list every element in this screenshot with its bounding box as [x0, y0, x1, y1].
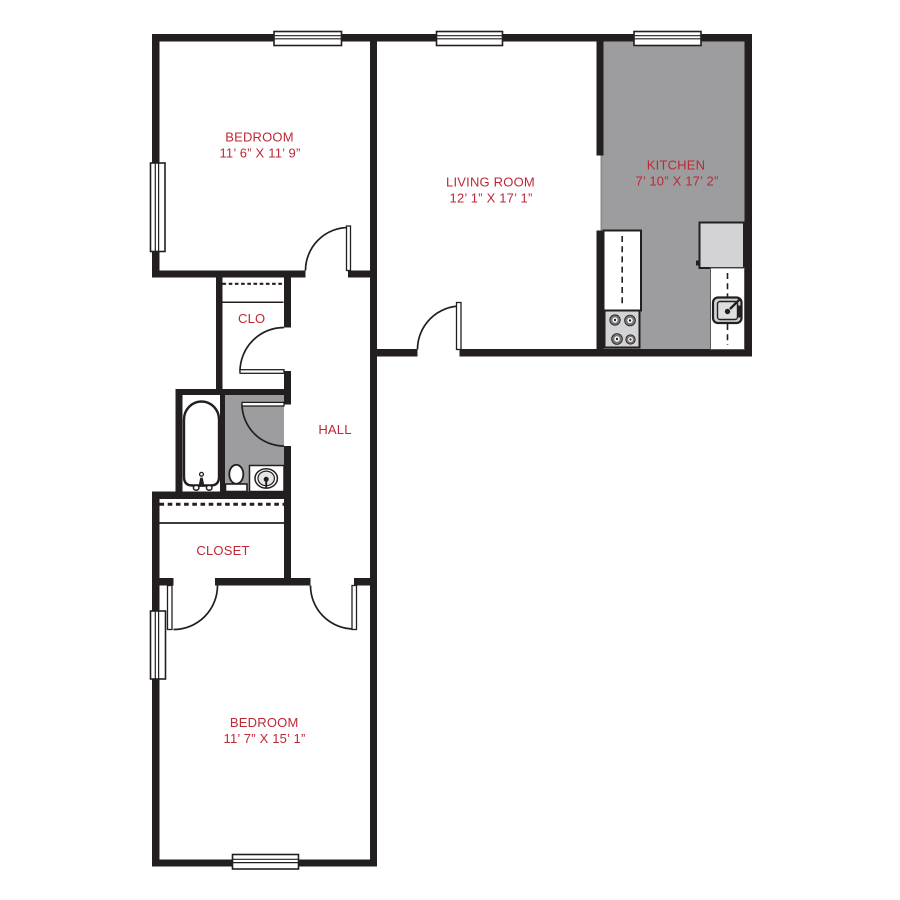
- svg-text:KITCHEN: KITCHEN: [647, 158, 705, 173]
- svg-text:BEDROOM: BEDROOM: [230, 715, 299, 730]
- svg-text:11’ 6” X 11’ 9”: 11’ 6” X 11’ 9”: [219, 146, 300, 161]
- svg-text:CLOSET: CLOSET: [196, 543, 249, 558]
- svg-text:11’ 7” X 15’ 1”: 11’ 7” X 15’ 1”: [223, 731, 305, 746]
- svg-text:HALL: HALL: [318, 422, 351, 437]
- svg-text:BEDROOM: BEDROOM: [225, 130, 294, 145]
- svg-text:12’ 1” X 17’ 1”: 12’ 1” X 17’ 1”: [450, 191, 533, 206]
- svg-text:LIVING ROOM: LIVING ROOM: [446, 175, 535, 190]
- svg-text:7’ 10” X 17’ 2”: 7’ 10” X 17’ 2”: [636, 174, 719, 189]
- svg-text:CLO: CLO: [238, 311, 265, 326]
